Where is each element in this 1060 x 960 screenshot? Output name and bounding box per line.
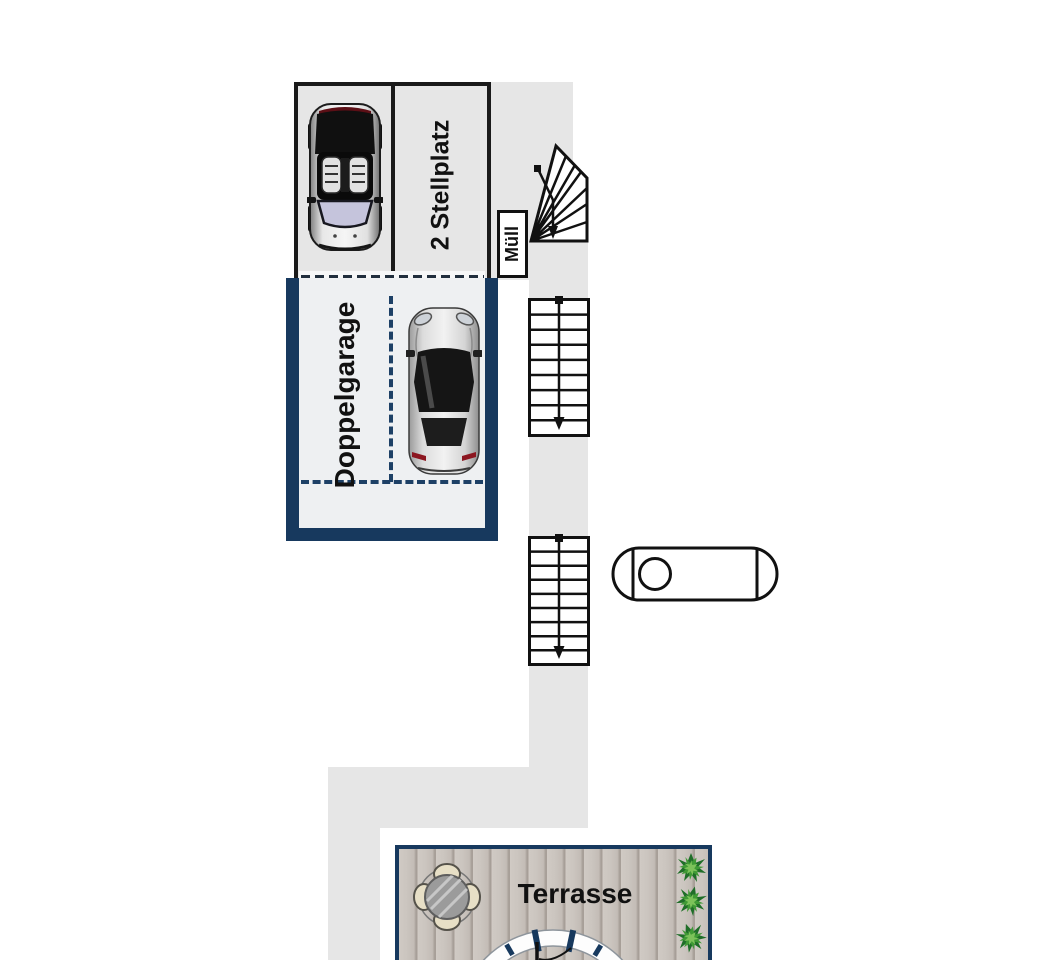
storage-tank-icon	[610, 545, 782, 605]
winder-stairs-icon	[524, 140, 592, 246]
plant-icon	[673, 882, 710, 919]
convertible-car-icon	[307, 102, 383, 252]
plant-icon	[672, 918, 711, 957]
terrace-decorations	[395, 845, 712, 960]
parking-label: 2 Stellplatz	[427, 120, 456, 251]
straight-stairs-upper-icon	[528, 295, 590, 440]
table-with-chairs-icon	[414, 864, 480, 930]
parking-stall-divider	[391, 84, 395, 278]
walkway-strip	[328, 767, 380, 960]
bay-window-icon	[458, 930, 648, 960]
trash-label: Müll	[502, 226, 523, 262]
garage-label: Doppelgarage	[329, 302, 361, 489]
garage-stall-divider-dashed	[389, 296, 393, 482]
coupe-car-icon	[406, 306, 482, 476]
plant-icon	[676, 853, 707, 884]
site-plan: 2 Stellplatz Doppelgarage Müll	[0, 0, 1060, 960]
straight-stairs-lower-icon	[528, 533, 590, 669]
